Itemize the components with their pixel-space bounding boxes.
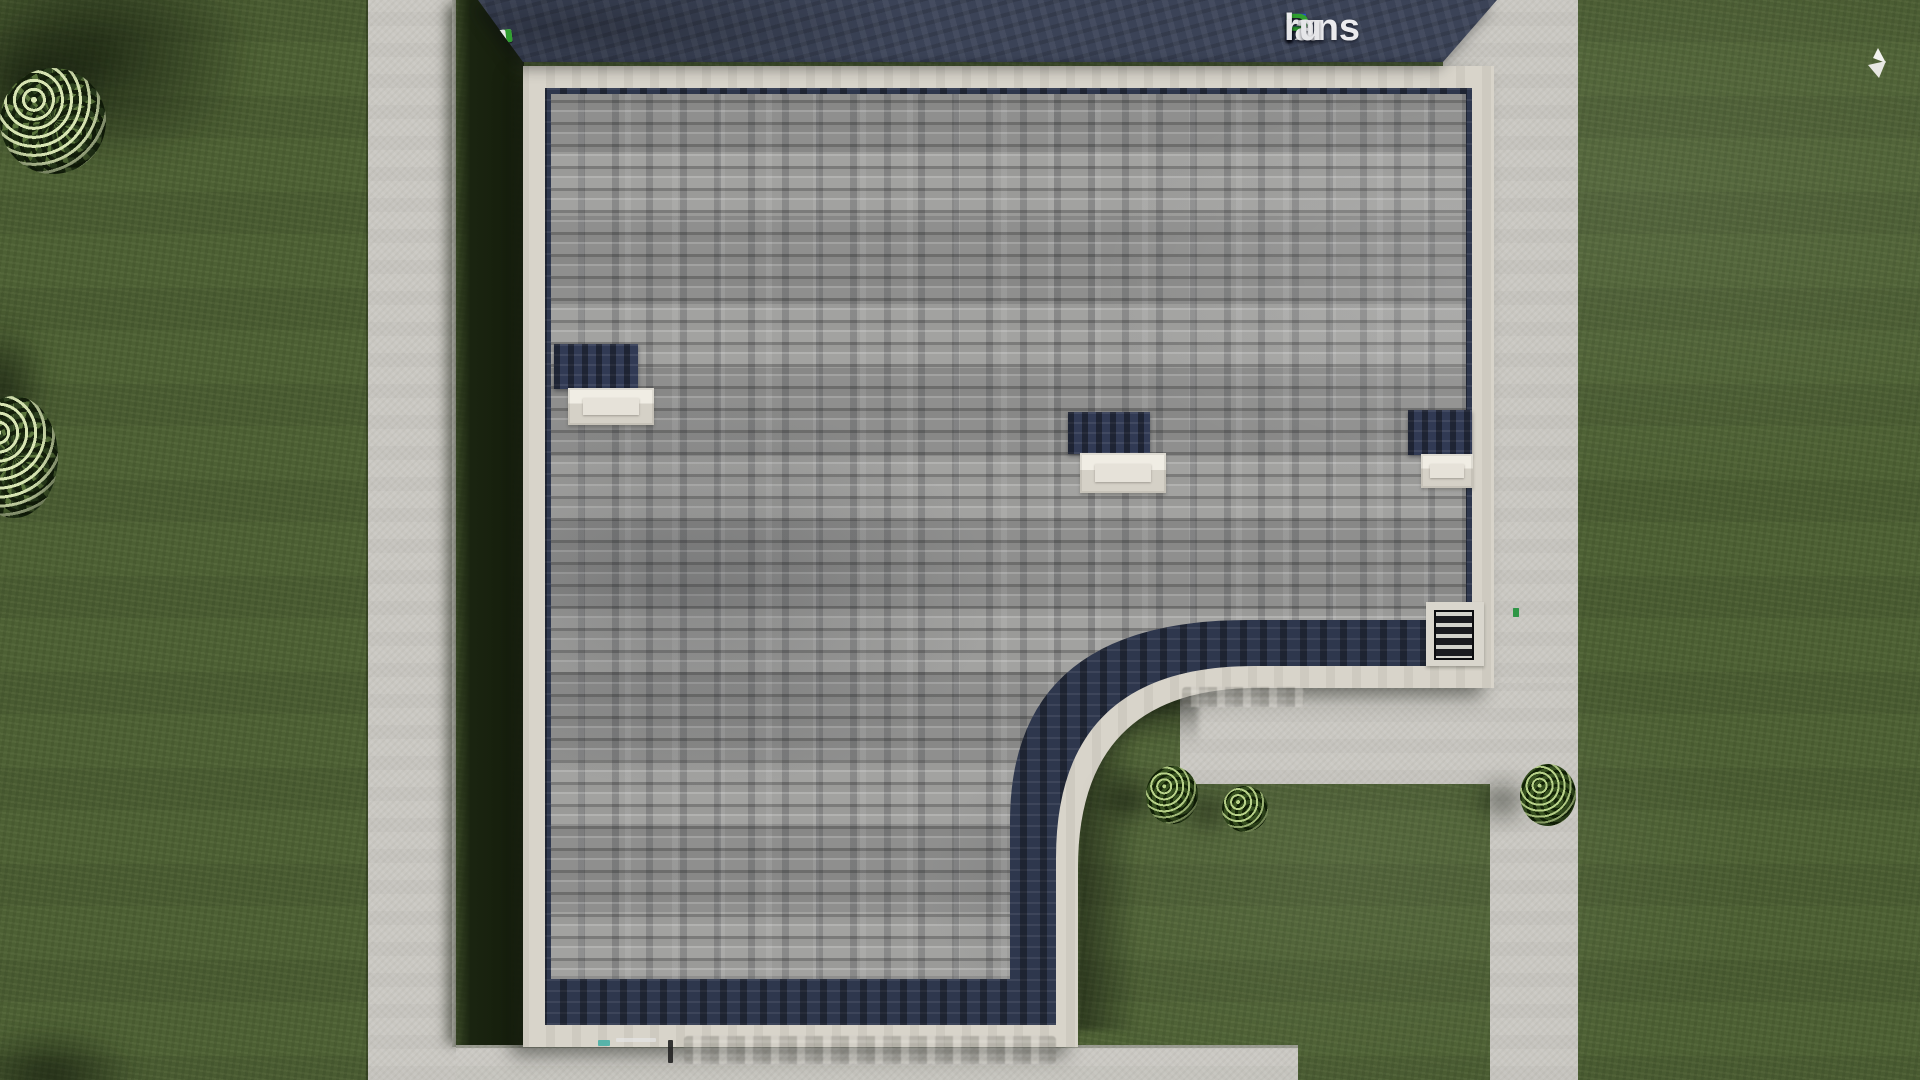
embossed-watermark [1182, 687, 1304, 707]
strip-segment [477, 29, 504, 45]
neighbor-roof-band [0, 0, 1920, 70]
strip-segment [477, 29, 504, 45]
aerial-roof-render: FixPlans.ru [0, 0, 1920, 1080]
bush [1520, 764, 1576, 826]
strip-segment [477, 29, 506, 45]
strip-segment [477, 30, 499, 45]
strip-segment [477, 28, 512, 45]
bird-icon [1858, 46, 1898, 84]
strip-segment [477, 31, 488, 45]
walkway-mark [616, 1038, 656, 1042]
neighbor-roof-group [0, 0, 1920, 1080]
embossed-watermark [684, 1036, 1056, 1064]
watermark-strip [477, 0, 807, 47]
walkway-mark [598, 1040, 610, 1046]
strip-segment [477, 31, 492, 46]
walkway-mark [668, 1040, 673, 1063]
strip-segment [477, 31, 489, 45]
logo-letter: ru [1284, 7, 1322, 50]
bush [1222, 786, 1268, 832]
